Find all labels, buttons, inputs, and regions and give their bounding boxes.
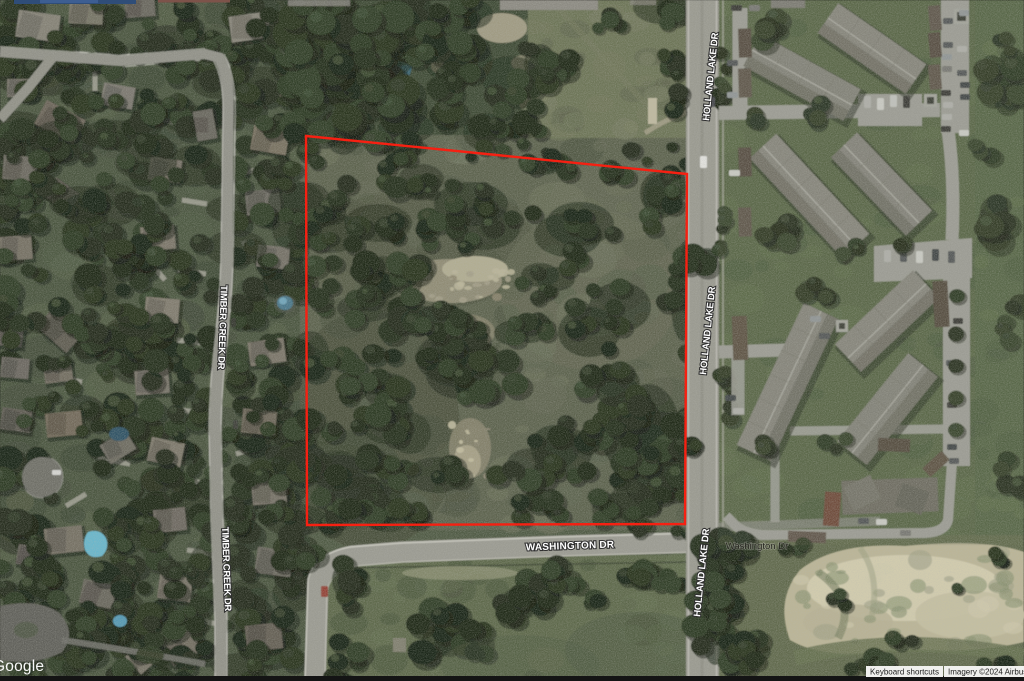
svg-text:Keyboard shortcuts: Keyboard shortcuts (870, 668, 939, 677)
svg-text:Google: Google (0, 658, 44, 675)
svg-text:Washington Dr: Washington Dr (726, 541, 788, 552)
svg-text:Imagery ©2024 Airbus: Imagery ©2024 Airbus (948, 668, 1024, 677)
